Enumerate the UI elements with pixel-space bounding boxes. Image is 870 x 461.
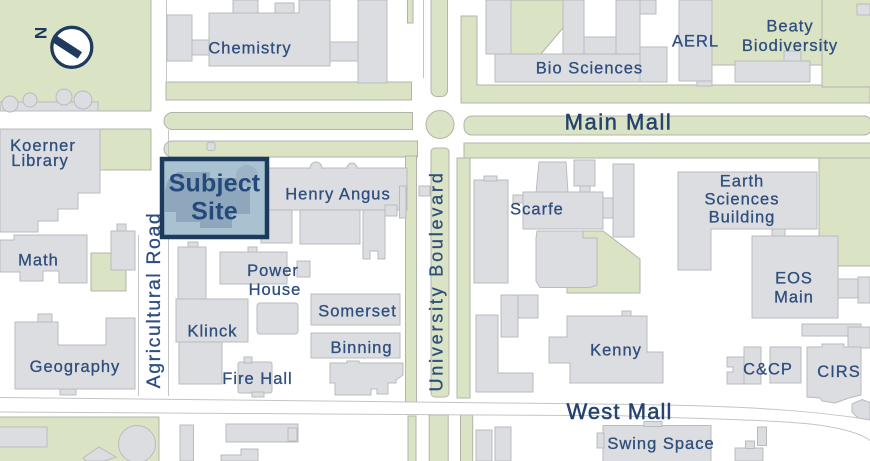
svg-text:Biodiversity: Biodiversity <box>742 37 838 55</box>
svg-text:C&CP: C&CP <box>743 361 793 379</box>
svg-text:Main: Main <box>774 289 814 307</box>
svg-text:Subject: Subject <box>169 170 261 198</box>
svg-text:CIRS: CIRS <box>817 363 860 381</box>
svg-text:Scarfe: Scarfe <box>510 201 564 219</box>
svg-text:N: N <box>32 27 51 39</box>
svg-text:Henry Angus: Henry Angus <box>285 186 390 204</box>
svg-text:Library: Library <box>11 152 68 170</box>
svg-text:Agricultural Road: Agricultural Road <box>143 212 165 389</box>
svg-text:Swing Space: Swing Space <box>607 435 714 453</box>
svg-text:Geography: Geography <box>30 358 121 376</box>
svg-text:Building: Building <box>709 209 776 227</box>
svg-text:Klinck: Klinck <box>187 323 237 341</box>
svg-text:Kenny: Kenny <box>590 342 642 360</box>
svg-text:Fire Hall: Fire Hall <box>222 370 292 388</box>
svg-text:Bio Sciences: Bio Sciences <box>536 60 643 78</box>
svg-text:EOS: EOS <box>775 270 813 288</box>
svg-text:Math: Math <box>18 252 59 270</box>
svg-text:West Mall: West Mall <box>566 399 672 424</box>
svg-text:Binning: Binning <box>330 339 392 357</box>
svg-text:Power: Power <box>247 262 299 280</box>
svg-text:Beaty: Beaty <box>766 18 813 36</box>
svg-text:AERL: AERL <box>672 33 719 51</box>
svg-text:Somerset: Somerset <box>318 303 397 321</box>
svg-text:Earth: Earth <box>720 173 764 191</box>
svg-text:Chemistry: Chemistry <box>208 40 291 58</box>
svg-text:Site: Site <box>191 198 238 226</box>
svg-text:Main Mall: Main Mall <box>565 110 673 135</box>
svg-text:Sciences: Sciences <box>705 191 780 209</box>
svg-text:University Boulevard: University Boulevard <box>427 170 447 391</box>
svg-text:House: House <box>249 281 302 299</box>
